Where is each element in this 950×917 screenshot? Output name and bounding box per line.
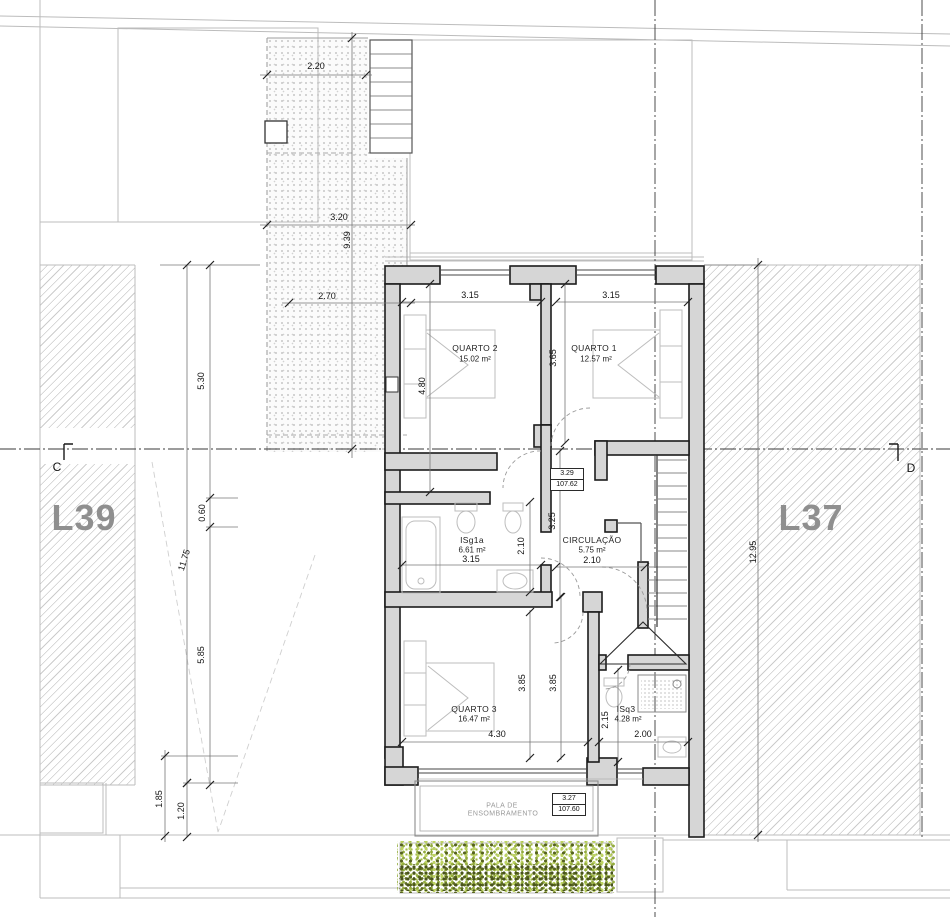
room-area-quarto1: 12.57 m² bbox=[580, 355, 612, 364]
roof-projection-lines bbox=[152, 462, 315, 832]
room-label-quarto3: QUARTO 3 bbox=[451, 704, 497, 714]
level-elevation: 107.62 bbox=[551, 480, 583, 490]
dim-quarto3-height-b: 3.85 bbox=[548, 674, 558, 692]
floor-plan-canvas: L39 L37 C D QUARTO 2 15.02 m² QUARTO 1 1… bbox=[0, 0, 950, 917]
dim-left-canopy-b: 1.20 bbox=[176, 802, 186, 820]
dim-left-step: 0.60 bbox=[197, 504, 207, 522]
lot-label-l39: L39 bbox=[51, 497, 116, 539]
vegetation-strip-shadow bbox=[399, 864, 613, 891]
room-label-quarto2: QUARTO 2 bbox=[452, 343, 498, 353]
dim-quarto2-width: 3.15 bbox=[461, 290, 479, 300]
section-marker-c: C bbox=[53, 460, 62, 474]
room-area-isq3: 4.28 m² bbox=[614, 715, 641, 724]
walls bbox=[385, 266, 704, 837]
window-quarto1 bbox=[576, 270, 656, 275]
level-elevation: 107.60 bbox=[553, 805, 585, 815]
room-area-circulacao: 5.75 m² bbox=[578, 546, 605, 555]
dim-quarto3-height-a: 3.85 bbox=[517, 674, 527, 692]
door-quarto3 bbox=[552, 612, 583, 643]
shower-isq3 bbox=[638, 675, 686, 712]
room-label-isq3: ISq3 bbox=[617, 704, 636, 714]
room-label-circulacao: CIRCULAÇÃO bbox=[563, 535, 622, 545]
section-marker-d: D bbox=[907, 461, 916, 475]
dim-terrace-width-mid: 3.20 bbox=[330, 212, 348, 222]
dim-left-upper: 5.30 bbox=[196, 372, 206, 390]
door-isq3 bbox=[604, 663, 630, 689]
window-quarto2 bbox=[440, 270, 510, 275]
canopy-label-line2: ENSOMBRAMENTO bbox=[468, 811, 538, 818]
level-value: 3.29 bbox=[551, 469, 583, 480]
level-marker-floor: 3.29 107.62 bbox=[550, 468, 584, 491]
dim-terrace-width-top: 2.20 bbox=[307, 61, 325, 71]
dim-isg1a-width: 3.15 bbox=[462, 554, 480, 564]
section-flag-c bbox=[64, 444, 73, 460]
room-area-quarto3: 16.47 m² bbox=[458, 715, 490, 724]
dim-circulacao-width: 2.10 bbox=[583, 555, 601, 565]
section-flag-d bbox=[889, 444, 898, 461]
dim-terrace-width-low: 2.70 bbox=[318, 291, 336, 301]
window-isq3 bbox=[617, 769, 643, 773]
window-left-small bbox=[386, 377, 398, 392]
bed-quarto1 bbox=[593, 310, 682, 418]
exterior-stair-ladder bbox=[370, 40, 412, 153]
dim-left-canopy-a: 1.85 bbox=[154, 790, 164, 808]
dim-isq3-width: 2.00 bbox=[634, 729, 652, 739]
room-label-quarto1: QUARTO 1 bbox=[571, 343, 617, 353]
room-label-isg1a: ISg1a bbox=[460, 535, 484, 545]
level-marker-canopy: 3.27 107.60 bbox=[552, 793, 586, 816]
sink-isg1a bbox=[497, 570, 533, 592]
terrace-box bbox=[265, 121, 287, 143]
dim-terrace-length: 9.39 bbox=[342, 231, 352, 249]
toilet-isg1a bbox=[455, 503, 477, 533]
sink-isq3 bbox=[658, 737, 686, 757]
bed-quarto2 bbox=[404, 315, 495, 418]
lot-label-l37: L37 bbox=[778, 497, 843, 539]
dim-hall-length: 3.25 bbox=[547, 512, 557, 530]
canopy-label-line1: PALA DE bbox=[486, 803, 517, 810]
bathtub-isg1a bbox=[402, 517, 440, 593]
dim-right-total: 12.95 bbox=[748, 541, 758, 564]
level-value: 3.27 bbox=[553, 794, 585, 805]
bidet-isg1a bbox=[503, 503, 523, 533]
dim-quarto3-width: 4.30 bbox=[488, 729, 506, 739]
window-quarto3 bbox=[418, 769, 587, 773]
dim-left-lower: 5.85 bbox=[196, 646, 206, 664]
dim-isg1a-height: 2.10 bbox=[516, 537, 526, 555]
staircase bbox=[600, 455, 687, 664]
dim-isq3-height: 2.15 bbox=[600, 711, 610, 729]
dim-quarto1-width: 3.15 bbox=[602, 290, 620, 300]
room-area-quarto2: 15.02 m² bbox=[459, 355, 491, 364]
door-quarto2 bbox=[503, 451, 541, 488]
plan-linework bbox=[0, 0, 950, 917]
door-quarto1 bbox=[551, 408, 590, 447]
dim-quarto2-height: 4.80 bbox=[417, 377, 427, 395]
dim-quarto1-height: 3.65 bbox=[548, 349, 558, 367]
